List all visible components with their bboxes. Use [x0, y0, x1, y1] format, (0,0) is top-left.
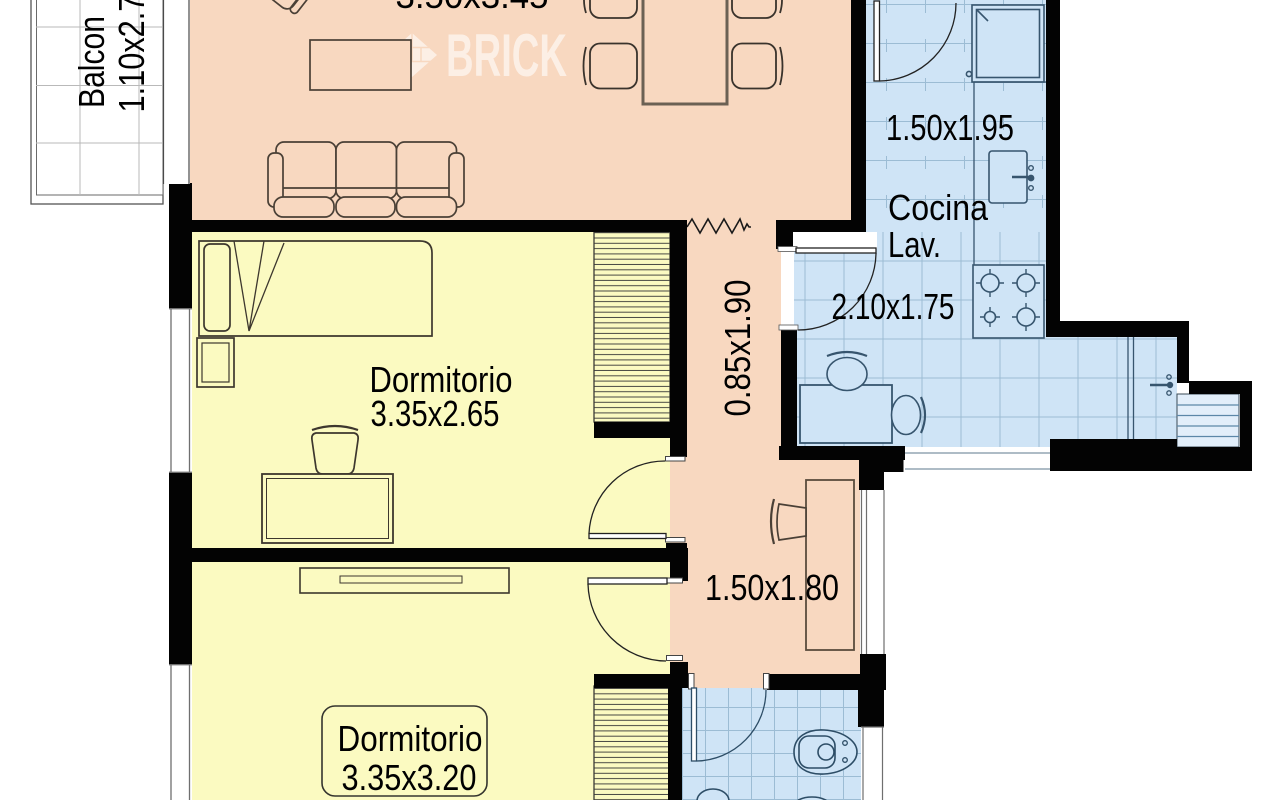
svg-text:3.35x2.65: 3.35x2.65: [371, 393, 500, 434]
svg-text:Lav.: Lav.: [888, 224, 941, 265]
svg-text:Dormitorio: Dormitorio: [338, 718, 483, 759]
svg-text:Balcon: Balcon: [71, 16, 112, 108]
svg-text:2.10x1.75: 2.10x1.75: [832, 286, 955, 327]
svg-text:Cocina: Cocina: [888, 187, 989, 228]
svg-text:1.50x1.95: 1.50x1.95: [886, 107, 1014, 148]
svg-text:3.50x3.45: 3.50x3.45: [396, 0, 549, 16]
svg-text:BRICK: BRICK: [446, 22, 567, 89]
svg-text:1.10x2.75: 1.10x2.75: [111, 0, 152, 113]
svg-text:0.85x1.90: 0.85x1.90: [717, 280, 758, 417]
svg-text:3.35x3.20: 3.35x3.20: [342, 757, 477, 798]
svg-text:1.50x1.80: 1.50x1.80: [705, 567, 839, 608]
